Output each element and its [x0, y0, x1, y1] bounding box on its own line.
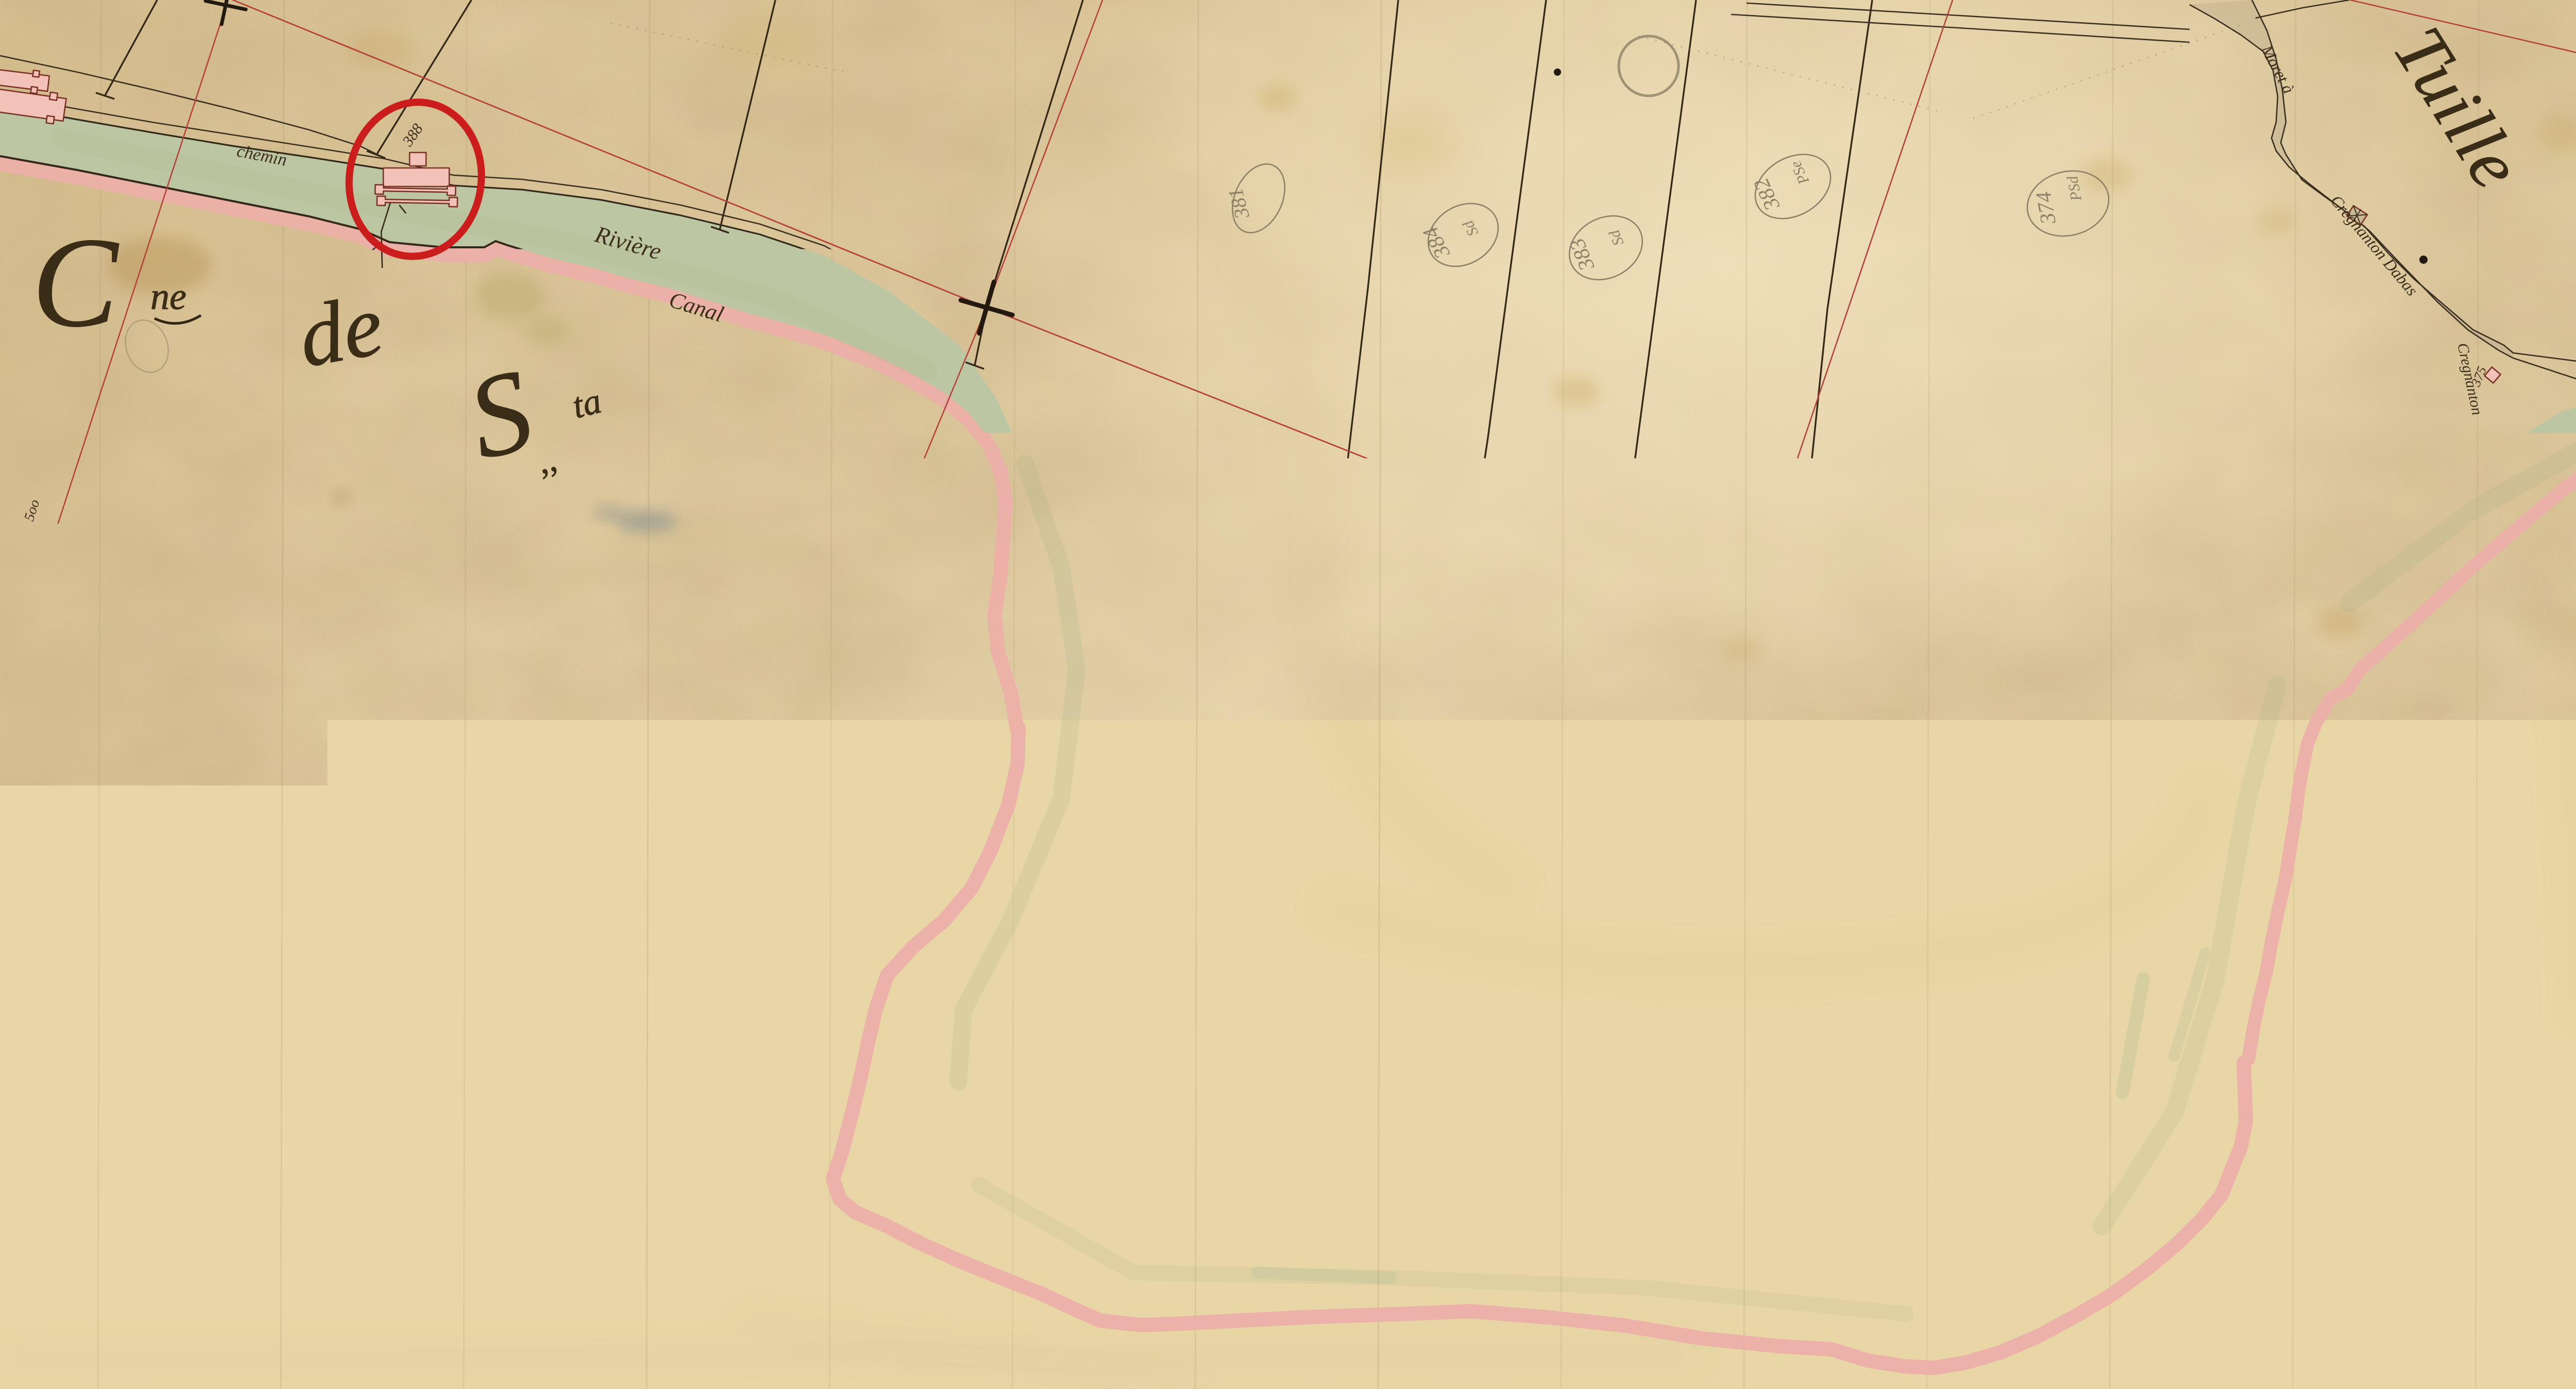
svg-text:C: C — [32, 211, 120, 354]
svg-text:Brest: Brest — [1581, 1269, 1617, 1291]
svg-text:ne: ne — [150, 276, 187, 318]
svg-text:Bladet: Bladet — [1540, 1243, 1582, 1261]
svg-text:de: de — [292, 276, 390, 385]
